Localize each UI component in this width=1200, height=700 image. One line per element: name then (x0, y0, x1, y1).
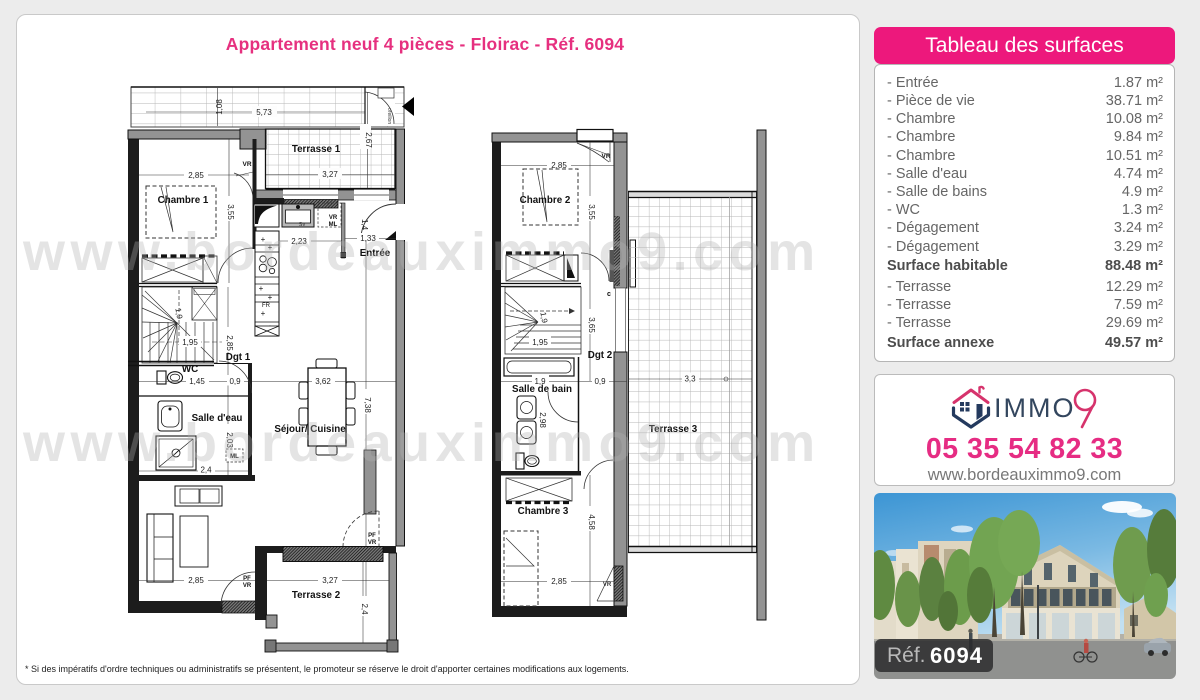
svg-text:3,65: 3,65 (587, 317, 596, 333)
svg-text:2,67: 2,67 (364, 132, 373, 148)
svg-text:3,62: 3,62 (315, 377, 331, 386)
svg-text:1,45: 1,45 (189, 377, 205, 386)
svg-text:1,95: 1,95 (532, 338, 548, 347)
svg-text:2,85: 2,85 (551, 577, 567, 586)
svg-text:2,23: 2,23 (291, 237, 307, 246)
svg-text:VR: VR (603, 582, 612, 588)
svg-text:Terrasse 2: Terrasse 2 (292, 590, 341, 601)
svg-text:+: + (268, 293, 273, 302)
svg-text:1,9: 1,9 (538, 311, 549, 324)
svg-text:0,9: 0,9 (229, 377, 241, 386)
svg-text:+: + (261, 235, 266, 244)
svg-text:1,4: 1,4 (360, 219, 369, 231)
svg-text:1,08: 1,08 (215, 99, 224, 115)
svg-text:VR: VR (243, 583, 252, 589)
svg-text:VR: VR (242, 161, 251, 168)
svg-text:3,3: 3,3 (684, 375, 696, 384)
svg-text:3,27: 3,27 (322, 576, 338, 585)
svg-text:Sv: Sv (299, 222, 306, 228)
svg-text:Chambre 2: Chambre 2 (520, 195, 571, 206)
svg-text:Salle de bain: Salle de bain (512, 384, 572, 395)
svg-text:Terrasse 1: Terrasse 1 (292, 144, 341, 155)
svg-text:IMMO: IMMO (994, 393, 1076, 423)
svg-text:1,95: 1,95 (182, 338, 198, 347)
svg-text:VR: VR (368, 540, 377, 546)
svg-text:3,27: 3,27 (322, 170, 338, 179)
svg-text:Entrée: Entrée (360, 248, 391, 259)
svg-text:3,55: 3,55 (226, 204, 235, 220)
svg-text:WC: WC (182, 364, 198, 375)
svg-text:Séjour/ Cuisine: Séjour/ Cuisine (274, 424, 346, 435)
svg-text:2,85: 2,85 (225, 335, 234, 351)
svg-text:4,58: 4,58 (587, 514, 596, 530)
svg-text:2,4: 2,4 (200, 466, 212, 475)
svg-text:PF: PF (243, 576, 251, 582)
svg-text:Dgt 2: Dgt 2 (588, 350, 613, 361)
svg-text:1,33: 1,33 (360, 234, 376, 243)
svg-text:Dgt 1: Dgt 1 (226, 352, 251, 363)
svg-text:+: + (259, 284, 264, 293)
svg-text:Terrasse 3: Terrasse 3 (649, 424, 698, 435)
svg-text:2,4: 2,4 (360, 603, 369, 615)
svg-text:2,03: 2,03 (225, 432, 234, 448)
svg-text:Salle d'eau: Salle d'eau (192, 413, 243, 424)
svg-text:FR: FR (262, 303, 271, 309)
svg-text:2,98: 2,98 (538, 412, 547, 428)
svg-text:7,38: 7,38 (363, 397, 372, 413)
svg-text:5,73: 5,73 (256, 108, 272, 117)
svg-text:oreillon: oreillon (386, 108, 392, 124)
svg-text:3,55: 3,55 (587, 204, 596, 220)
svg-text:ML: ML (230, 454, 239, 460)
svg-text:c: c (607, 291, 611, 298)
svg-text:PF: PF (368, 533, 376, 539)
svg-text:VR: VR (329, 215, 338, 221)
svg-text:2,85: 2,85 (188, 576, 204, 585)
svg-text:+: + (261, 309, 266, 318)
svg-text:ML: ML (329, 222, 338, 228)
svg-text:1,9: 1,9 (173, 307, 184, 320)
svg-text:+: + (268, 243, 273, 252)
svg-text:0,9: 0,9 (594, 377, 606, 386)
svg-text:Chambre 3: Chambre 3 (518, 506, 569, 517)
svg-text:2,85: 2,85 (188, 171, 204, 180)
